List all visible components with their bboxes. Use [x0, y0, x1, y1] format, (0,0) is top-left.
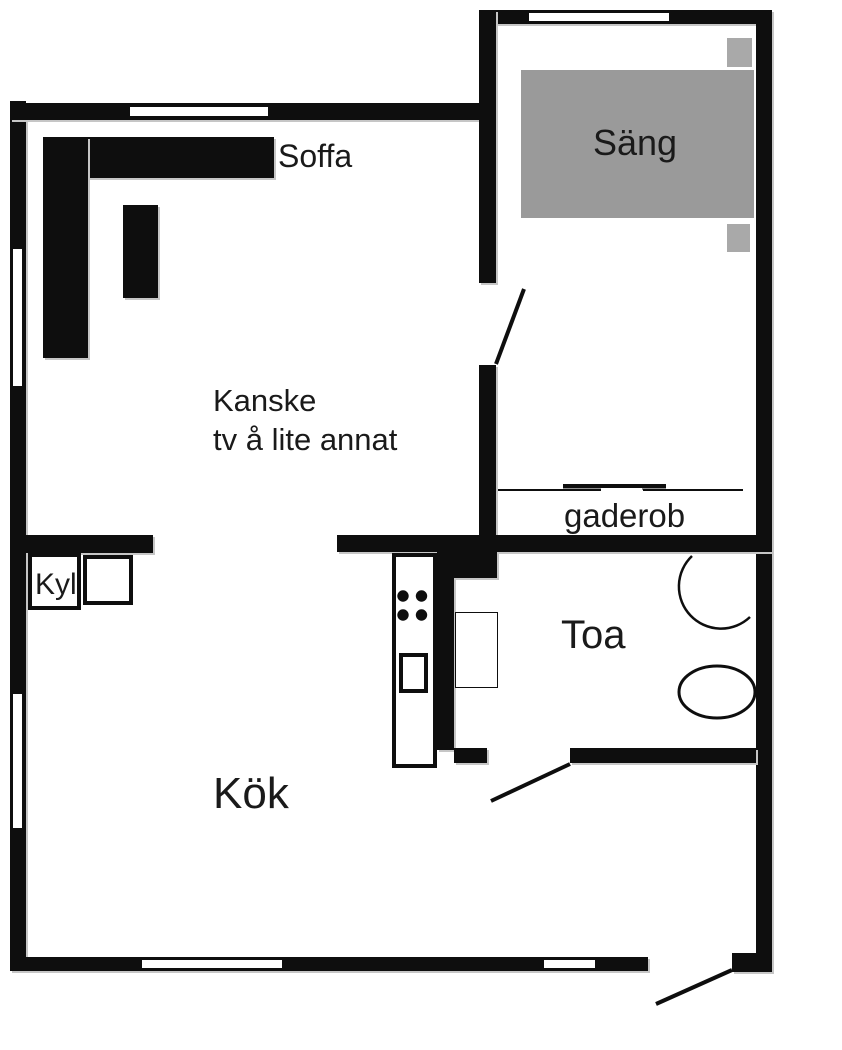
entry-door-swing [656, 970, 732, 1004]
sofa-label: Soffa [278, 140, 352, 172]
wall-right-exterior [756, 10, 772, 972]
bathroom-label: Toa [561, 615, 626, 655]
freezer-box [83, 555, 133, 605]
wall-bedroom-left-upper [479, 10, 496, 283]
kitchen-label: Kök [213, 772, 289, 816]
window-left-lower [13, 694, 22, 828]
wall-bathroom-door-jamb [454, 748, 487, 763]
bed-label: Säng [593, 125, 677, 161]
wall-left-exterior [10, 101, 26, 971]
wall-mid-horizontal [337, 535, 772, 552]
window-bottom-right [544, 960, 595, 968]
wardrobe-track-right [643, 489, 743, 491]
window-living-top [130, 107, 268, 116]
wardrobe-label: gaderob [564, 499, 685, 532]
wall-entry-corner [732, 953, 772, 972]
bathroom-door-swing [491, 764, 570, 801]
sofa-arm [43, 137, 88, 358]
window-bottom-left [142, 960, 282, 968]
wall-bedroom-left-lower [479, 365, 496, 552]
fridge-label: Kyl [35, 570, 77, 600]
oven-box [399, 653, 428, 693]
wall-bathroom-left [437, 552, 454, 750]
wall-bathroom-top-stub [454, 552, 497, 578]
wardrobe-sliding-door [563, 484, 666, 488]
tv-unit [123, 205, 158, 298]
wall-kitchen-top [26, 535, 153, 553]
bedroom-door-swing [496, 289, 524, 364]
wall-bathroom-bottom [570, 748, 756, 763]
note-line-2: tv å lite annat [213, 424, 397, 455]
floorplan-canvas: Soffa Säng Kanske tv å lite annat gadero… [0, 0, 842, 1050]
toilet-icon [679, 666, 755, 718]
nightstand-top [727, 38, 752, 67]
washer-box [455, 612, 498, 688]
window-left-upper [13, 249, 22, 386]
wardrobe-track-left [498, 489, 601, 491]
nightstand-bottom [727, 224, 750, 252]
sink-icon [679, 556, 750, 629]
window-bedroom-top [529, 13, 669, 21]
note-line-1: Kanske [213, 385, 316, 416]
